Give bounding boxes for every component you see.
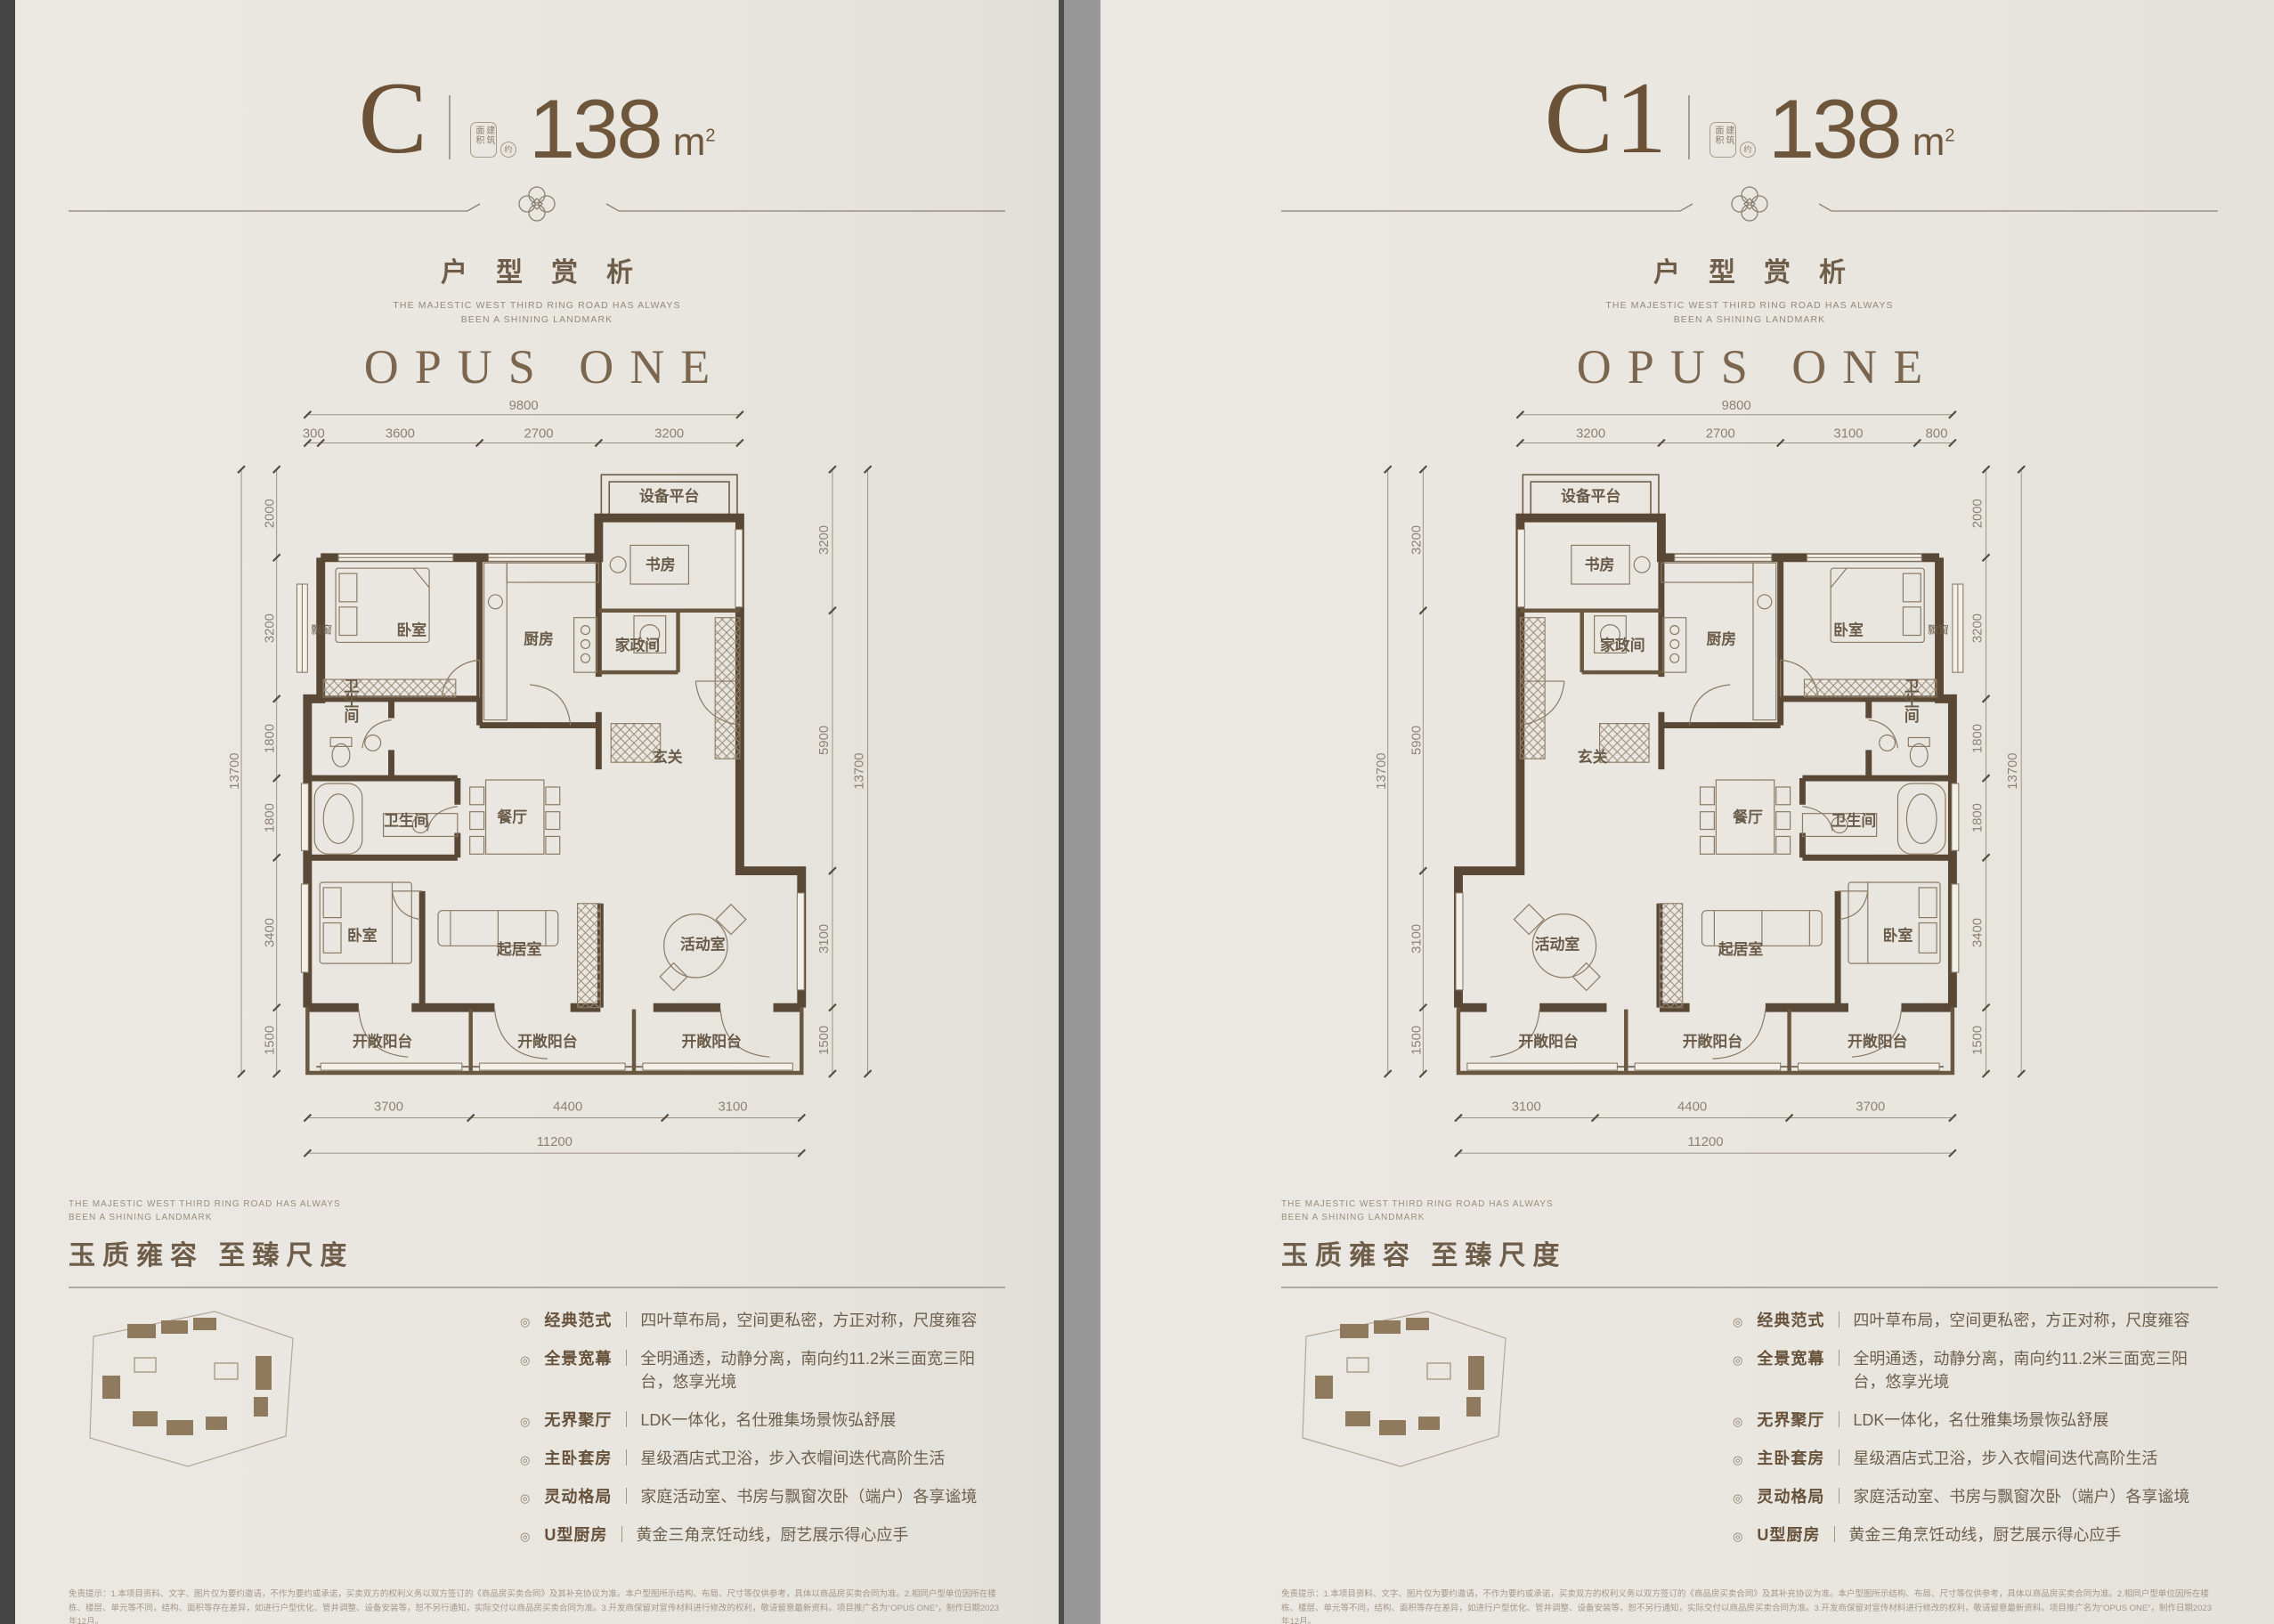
dim-right-0: 3200 bbox=[817, 525, 832, 555]
footer-english-line1: THE MAJESTIC WEST THIRD RING ROAD HAS AL… bbox=[1281, 1198, 2218, 1211]
dim-right-0: 2000 bbox=[1971, 499, 1986, 528]
feature-desc: 全明通透，动静分离，南向约11.2米三面宽三阳台，悠享光境 bbox=[640, 1346, 1005, 1393]
bullet-icon: ◎ bbox=[1733, 1315, 1742, 1329]
dim-left-2: 1800 bbox=[264, 724, 278, 753]
feature-item: ◎灵动格局｜家庭活动室、书房与飘窗次卧（端户）各享谧境 bbox=[1733, 1484, 2218, 1507]
feature-separator: ｜ bbox=[1831, 1308, 1847, 1331]
area-unit-exp: 2 bbox=[705, 126, 715, 145]
feature-item: ◎经典范式｜四叶草布局，空间更私密，方正对称，尺度雍容 bbox=[1733, 1308, 2218, 1331]
site-buildings-outline bbox=[134, 1358, 238, 1379]
room-label-balcony1: 开敞阳台 bbox=[353, 1032, 412, 1050]
feature-desc: 家庭活动室、书房与飘窗次卧（端户）各享谧境 bbox=[640, 1484, 977, 1507]
area-tag: 建筑面积 约 bbox=[470, 122, 516, 158]
feature-item: ◎U型厨房｜黄金三角烹饪动线，厨艺展示得心应手 bbox=[520, 1522, 1005, 1546]
feature-item: ◎全景宽幕｜全明通透，动静分离，南向约11.2米三面宽三阳台，悠享光境 bbox=[1733, 1346, 2218, 1393]
feature-item: ◎U型厨房｜黄金三角烹饪动线，厨艺展示得心应手 bbox=[1733, 1522, 2218, 1546]
room-label-bedroom1: 卧室 bbox=[1833, 621, 1864, 639]
room-label-bath2: 卫生间 bbox=[384, 812, 428, 830]
flower-icon bbox=[519, 187, 555, 221]
section-title: 户型赏析 bbox=[15, 250, 1059, 289]
room-labels: 设备平台 书房 家政间 玄关 厨房 卧室 飘窗 卫生间 卫生间 餐厅 起居室 活… bbox=[311, 487, 742, 1050]
feature-list: ◎经典范式｜四叶草布局，空间更私密，方正对称，尺度雍容 ◎全景宽幕｜全明通透，动… bbox=[1733, 1308, 2218, 1561]
feature-separator: ｜ bbox=[618, 1408, 634, 1431]
dim-top-2: 3100 bbox=[1833, 427, 1863, 442]
room-labels: 设备平台 书房 家政间 玄关 厨房 卧室 飘窗 卫生间 卫生间 餐厅 起居室 活… bbox=[1518, 487, 1949, 1050]
feature-desc: 家庭活动室、书房与飘窗次卧（端户）各享谧境 bbox=[1853, 1484, 2189, 1507]
room-label-foyer: 玄关 bbox=[653, 748, 683, 766]
area-label: 建筑面积 bbox=[1710, 122, 1736, 158]
feature-item: ◎经典范式｜四叶草布局，空间更私密，方正对称，尺度雍容 bbox=[520, 1308, 1005, 1331]
room-label-study: 书房 bbox=[646, 556, 676, 573]
brand-title: OPUS ONE bbox=[1100, 339, 2274, 394]
dim-left-1: 5900 bbox=[1409, 726, 1424, 755]
feature-item: ◎无界聚厅｜LDK一体化，名仕雅集场景恢弘舒展 bbox=[520, 1408, 1005, 1431]
area-unit-exp: 2 bbox=[1945, 126, 1954, 145]
page-unit-c: C 建筑面积 约 138 m2 户型赏析 THE MAJESTIC WEST T… bbox=[15, 0, 1059, 1624]
dim-right-5: 1500 bbox=[1971, 1026, 1986, 1055]
dim-left-4: 3400 bbox=[264, 918, 278, 947]
area-number: 138 bbox=[1768, 95, 1900, 162]
footer-rule bbox=[1281, 1287, 2218, 1288]
feature-desc: 星级酒店式卫浴，步入衣帽间迭代高阶生活 bbox=[640, 1446, 945, 1469]
dim-bottom-2: 3700 bbox=[1856, 1100, 1885, 1115]
left-edge-strip bbox=[0, 0, 15, 1624]
feature-desc: 四叶草布局，空间更私密，方正对称，尺度雍容 bbox=[640, 1308, 977, 1331]
bullet-icon: ◎ bbox=[1733, 1415, 1742, 1429]
feature-title: 主卧套房 bbox=[544, 1446, 612, 1469]
disclaimer-text: 免责提示：1.本项目资料、文字、图片仅为要约邀请，不作为要约或承诺，买卖双方的权… bbox=[1281, 1587, 2218, 1624]
dim-top-total: 9800 bbox=[509, 399, 539, 413]
dim-top-0: 300 bbox=[303, 427, 325, 442]
brochure-spread: C 建筑面积 约 138 m2 户型赏析 THE MAJESTIC WEST T… bbox=[0, 0, 2274, 1624]
section-subtitle-line2: BEEN A SHINING LANDMARK bbox=[15, 313, 1059, 327]
feature-separator: ｜ bbox=[618, 1346, 634, 1369]
dim-right-3: 1800 bbox=[1971, 803, 1986, 832]
dim-right-total: 13700 bbox=[2006, 753, 2020, 790]
area-unit-m: m bbox=[1913, 120, 1945, 164]
dim-bottom-total: 11200 bbox=[537, 1135, 573, 1149]
dim-top-1: 2700 bbox=[1706, 427, 1735, 442]
feature-item: ◎主卧套房｜星级酒店式卫浴，步入衣帽间迭代高阶生活 bbox=[520, 1446, 1005, 1469]
room-label-equipment: 设备平台 bbox=[1561, 487, 1620, 505]
section-subtitle-line2: BEEN A SHINING LANDMARK bbox=[1100, 313, 2274, 327]
room-label-living: 起居室 bbox=[496, 940, 542, 958]
room-label-balcony2: 开敞阳台 bbox=[517, 1032, 577, 1050]
feature-title: 经典范式 bbox=[1757, 1308, 1824, 1331]
unit-title: C1 建筑面积 约 138 m2 bbox=[1100, 0, 2274, 163]
dim-left-3: 1800 bbox=[264, 803, 278, 832]
brand-title: OPUS ONE bbox=[15, 339, 1059, 394]
room-label-bath1: 卫生间 bbox=[1902, 678, 1919, 724]
dim-left-total: 13700 bbox=[1375, 753, 1389, 790]
room-label-bay-window: 飘窗 bbox=[1928, 624, 1949, 637]
bullet-icon: ◎ bbox=[520, 1353, 530, 1368]
site-buildings bbox=[102, 1318, 272, 1435]
room-label-bedroom1: 卧室 bbox=[396, 621, 426, 639]
feature-separator: ｜ bbox=[613, 1522, 629, 1546]
feature-title: 经典范式 bbox=[544, 1308, 612, 1331]
room-label-bay-window: 飘窗 bbox=[311, 624, 332, 637]
bullet-icon: ◎ bbox=[520, 1530, 530, 1544]
dim-left-0: 2000 bbox=[264, 499, 278, 528]
feature-separator: ｜ bbox=[1831, 1346, 1847, 1369]
bullet-icon: ◎ bbox=[520, 1315, 530, 1329]
footer-english-line2: BEEN A SHINING LANDMARK bbox=[1281, 1211, 2218, 1224]
site-plan-sketch bbox=[1294, 1304, 1516, 1474]
section-subtitle-line1: THE MAJESTIC WEST THIRD RING ROAD HAS AL… bbox=[1100, 298, 2274, 313]
footer-rule bbox=[69, 1287, 1005, 1288]
title-divider bbox=[1688, 95, 1690, 159]
dim-bottom-1: 4400 bbox=[553, 1100, 582, 1115]
area-unit-m: m bbox=[673, 120, 706, 164]
dim-left-0: 3200 bbox=[1409, 525, 1424, 555]
feature-item: ◎主卧套房｜星级酒店式卫浴，步入衣帽间迭代高阶生活 bbox=[1733, 1446, 2218, 1469]
feature-separator: ｜ bbox=[1826, 1522, 1842, 1546]
dim-right-total: 13700 bbox=[853, 753, 867, 790]
feature-desc: 四叶草布局，空间更私密，方正对称，尺度雍容 bbox=[1853, 1308, 2189, 1331]
footer-english: THE MAJESTIC WEST THIRD RING ROAD HAS AL… bbox=[69, 1198, 1005, 1224]
feature-item: ◎灵动格局｜家庭活动室、书房与飘窗次卧（端户）各享谧境 bbox=[520, 1484, 1005, 1507]
footer-unit-c: THE MAJESTIC WEST THIRD RING ROAD HAS AL… bbox=[69, 1198, 1005, 1624]
dim-left-total: 13700 bbox=[228, 753, 242, 790]
bullet-icon: ◎ bbox=[520, 1491, 530, 1506]
dim-bottom-0: 3700 bbox=[374, 1100, 403, 1115]
site-buildings bbox=[1315, 1318, 1484, 1435]
dim-right-2: 1800 bbox=[1971, 724, 1986, 753]
furniture bbox=[314, 546, 769, 1060]
bullet-icon: ◎ bbox=[1733, 1530, 1742, 1544]
bullet-icon: ◎ bbox=[1733, 1453, 1742, 1467]
site-buildings-outline bbox=[1347, 1358, 1450, 1379]
section-subtitle: THE MAJESTIC WEST THIRD RING ROAD HAS AL… bbox=[1100, 298, 2274, 328]
dim-right-1: 5900 bbox=[817, 726, 832, 755]
feature-separator: ｜ bbox=[1831, 1484, 1847, 1507]
dim-right-1: 3200 bbox=[1971, 613, 1986, 643]
title-divider bbox=[449, 95, 451, 159]
feature-separator: ｜ bbox=[618, 1446, 634, 1469]
feature-title: 全景宽幕 bbox=[1757, 1346, 1824, 1369]
feature-desc: LDK一体化，名仕雅集场景恢弘舒展 bbox=[1853, 1408, 2108, 1431]
approx-badge: 约 bbox=[500, 142, 516, 158]
section-subtitle-line1: THE MAJESTIC WEST THIRD RING ROAD HAS AL… bbox=[15, 298, 1059, 313]
area-unit: m2 bbox=[673, 123, 716, 162]
room-label-balcony3: 开敞阳台 bbox=[1518, 1032, 1578, 1050]
room-label-housekeeping: 家政间 bbox=[1600, 636, 1645, 654]
feature-list: ◎经典范式｜四叶草布局，空间更私密，方正对称，尺度雍容 ◎全景宽幕｜全明通透，动… bbox=[520, 1308, 1005, 1561]
feature-separator: ｜ bbox=[1831, 1408, 1847, 1431]
dim-right-2: 3100 bbox=[817, 924, 832, 954]
bullet-icon: ◎ bbox=[1733, 1353, 1742, 1368]
room-label-bedroom2: 卧室 bbox=[347, 926, 378, 944]
room-label-living: 起居室 bbox=[1718, 940, 1764, 958]
unit-letter: C1 bbox=[1545, 75, 1669, 163]
room-label-dining: 餐厅 bbox=[1732, 808, 1763, 826]
dim-bottom-1: 4400 bbox=[1677, 1100, 1707, 1115]
divider-ornament bbox=[1281, 184, 2218, 223]
bullet-icon: ◎ bbox=[1733, 1491, 1742, 1506]
dim-bottom-total: 11200 bbox=[1687, 1135, 1723, 1149]
feature-title: U型厨房 bbox=[1757, 1522, 1820, 1546]
feature-desc: LDK一体化，名仕雅集场景恢弘舒展 bbox=[640, 1408, 896, 1431]
area-tag: 建筑面积 约 bbox=[1710, 122, 1756, 158]
dim-bottom-0: 3100 bbox=[1512, 1100, 1541, 1115]
page-gutter bbox=[1059, 0, 1064, 1624]
footer-tagline: 玉质雍容 至臻尺度 bbox=[1281, 1233, 2218, 1272]
room-label-equipment: 设备平台 bbox=[639, 487, 699, 505]
dim-top-0: 3200 bbox=[1576, 427, 1605, 442]
footer-english: THE MAJESTIC WEST THIRD RING ROAD HAS AL… bbox=[1281, 1198, 2218, 1224]
area-number: 138 bbox=[529, 95, 661, 162]
feature-title: 灵动格局 bbox=[544, 1484, 612, 1507]
feature-title: 主卧套房 bbox=[1757, 1446, 1824, 1469]
unit-title: C 建筑面积 约 138 m2 bbox=[15, 0, 1059, 163]
bullet-icon: ◎ bbox=[520, 1415, 530, 1429]
feature-desc: 黄金三角烹饪动线，厨艺展示得心应手 bbox=[636, 1522, 908, 1546]
disclaimer-text: 免责提示：1.本项目资料、文字、图片仅为要约邀请，不作为要约或承诺，买卖双方的权… bbox=[69, 1587, 1005, 1624]
room-label-balcony1: 开敞阳台 bbox=[1848, 1032, 1907, 1050]
page-unit-c1: C1 建筑面积 约 138 m2 户型赏析 THE MAJESTIC WEST … bbox=[1100, 0, 2274, 1624]
dim-top-2: 2700 bbox=[524, 427, 553, 442]
dim-top-1: 3600 bbox=[386, 427, 415, 442]
section-title: 户型赏析 bbox=[1100, 250, 2274, 289]
dim-left-2: 3100 bbox=[1409, 924, 1424, 954]
feature-title: 灵动格局 bbox=[1757, 1484, 1824, 1507]
feature-separator: ｜ bbox=[618, 1308, 634, 1331]
room-label-kitchen: 厨房 bbox=[524, 630, 554, 648]
room-label-balcony2: 开敞阳台 bbox=[1683, 1032, 1742, 1050]
room-label-balcony3: 开敞阳台 bbox=[682, 1032, 742, 1050]
dim-left-1: 3200 bbox=[264, 613, 278, 643]
area-unit: m2 bbox=[1913, 123, 1955, 162]
dim-top-3: 800 bbox=[1926, 427, 1948, 442]
floor-plan-c: 9800 300 3600 2700 3200 13700 2000 3200 … bbox=[149, 394, 925, 1189]
feature-separator: ｜ bbox=[1831, 1446, 1847, 1469]
dim-bottom-2: 3100 bbox=[718, 1100, 747, 1115]
section-subtitle: THE MAJESTIC WEST THIRD RING ROAD HAS AL… bbox=[15, 298, 1059, 328]
room-label-study: 书房 bbox=[1585, 556, 1615, 573]
footer-english-line2: BEEN A SHINING LANDMARK bbox=[69, 1211, 1005, 1224]
feature-title: 无界聚厅 bbox=[544, 1408, 612, 1431]
dim-right-3: 1500 bbox=[817, 1026, 832, 1055]
room-label-bath1: 卫生间 bbox=[341, 678, 358, 724]
bullet-icon: ◎ bbox=[520, 1453, 530, 1467]
plan-walls bbox=[296, 475, 804, 1073]
divider-ornament bbox=[69, 184, 1005, 223]
room-label-bath2: 卫生间 bbox=[1831, 812, 1876, 830]
room-label-activity: 活动室 bbox=[680, 935, 726, 953]
feature-item: ◎全景宽幕｜全明通透，动静分离，南向约11.2米三面宽三阳台，悠享光境 bbox=[520, 1346, 1005, 1393]
room-label-foyer: 玄关 bbox=[1578, 748, 1608, 766]
site-plan-sketch bbox=[81, 1304, 304, 1474]
room-label-bedroom2: 卧室 bbox=[1883, 926, 1913, 944]
feature-separator: ｜ bbox=[618, 1484, 634, 1507]
dim-left-5: 1500 bbox=[264, 1026, 278, 1055]
feature-desc: 黄金三角烹饪动线，厨艺展示得心应手 bbox=[1848, 1522, 2121, 1546]
dim-top-total: 9800 bbox=[1722, 399, 1751, 413]
feature-item: ◎无界聚厅｜LDK一体化，名仕雅集场景恢弘舒展 bbox=[1733, 1408, 2218, 1431]
feature-title: 全景宽幕 bbox=[544, 1346, 612, 1369]
approx-badge: 约 bbox=[1740, 142, 1756, 158]
room-label-housekeeping: 家政间 bbox=[615, 636, 660, 654]
dim-top-3: 3200 bbox=[654, 427, 684, 442]
feature-title: 无界聚厅 bbox=[1757, 1408, 1824, 1431]
feature-desc: 全明通透，动静分离，南向约11.2米三面宽三阳台，悠享光境 bbox=[1853, 1346, 2218, 1393]
footer-tagline: 玉质雍容 至臻尺度 bbox=[69, 1233, 1005, 1272]
feature-desc: 星级酒店式卫浴，步入衣帽间迭代高阶生活 bbox=[1853, 1446, 2157, 1469]
feature-title: U型厨房 bbox=[544, 1522, 607, 1546]
room-label-dining: 餐厅 bbox=[496, 808, 527, 826]
floor-plan-c1: 9800 3200 2700 3100 800 13700 3200 5900 … bbox=[1361, 394, 2138, 1189]
dim-right-4: 3400 bbox=[1971, 918, 1986, 947]
unit-letter: C bbox=[359, 75, 429, 163]
footer-english-line1: THE MAJESTIC WEST THIRD RING ROAD HAS AL… bbox=[69, 1198, 1005, 1211]
footer-unit-c1: THE MAJESTIC WEST THIRD RING ROAD HAS AL… bbox=[1281, 1198, 2218, 1624]
dim-left-3: 1500 bbox=[1409, 1026, 1424, 1055]
flower-icon bbox=[1732, 187, 1767, 221]
room-label-activity: 活动室 bbox=[1535, 935, 1580, 953]
area-label: 建筑面积 bbox=[470, 122, 497, 158]
room-label-kitchen: 厨房 bbox=[1706, 630, 1736, 648]
